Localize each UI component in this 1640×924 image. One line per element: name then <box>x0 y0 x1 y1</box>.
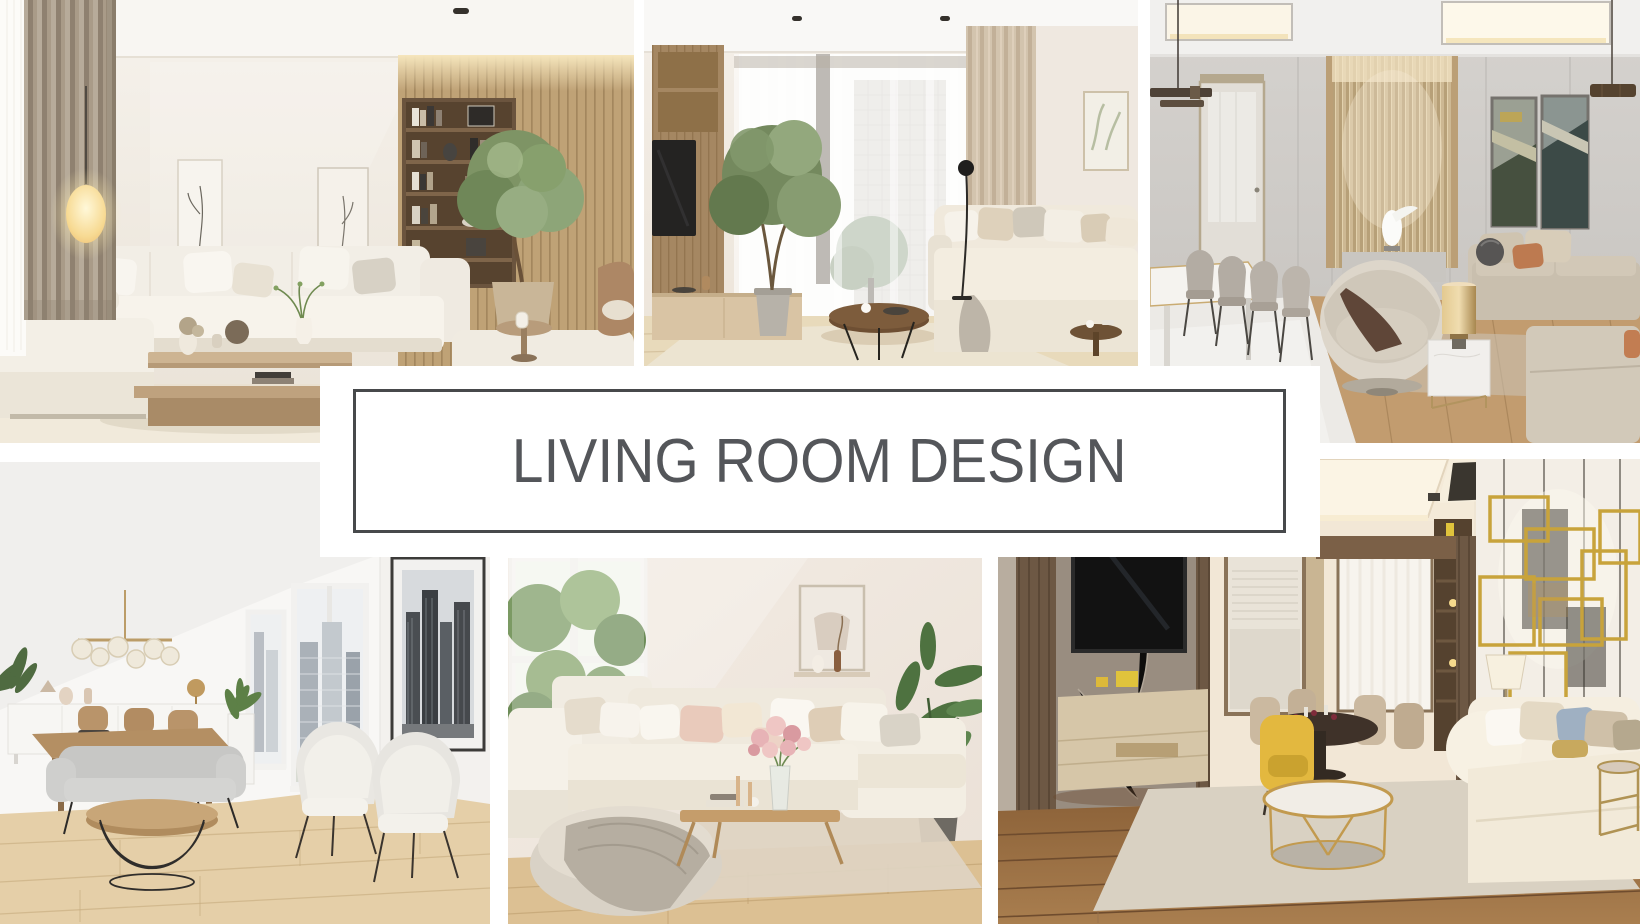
photo-bottom-middle-scene <box>508 558 982 924</box>
living-room-collage: LIVING ROOM DESIGN <box>0 0 1640 924</box>
fluted-feature-wall <box>1326 56 1458 282</box>
title-frame: LIVING ROOM DESIGN <box>353 389 1286 533</box>
door <box>1200 74 1264 272</box>
photo-top-middle-scene <box>644 0 1138 368</box>
shelf-art <box>794 586 870 677</box>
collage-title: LIVING ROOM DESIGN <box>512 426 1127 497</box>
mirror <box>1226 554 1304 714</box>
sofa-bottom-right <box>1526 326 1640 443</box>
photo-bottom-middle <box>508 558 982 924</box>
curtain-panel <box>1306 547 1324 713</box>
framed-art <box>1084 92 1128 170</box>
back-room <box>1210 519 1472 801</box>
title-banner: LIVING ROOM DESIGN <box>320 366 1320 557</box>
photo-top-middle <box>644 0 1138 368</box>
framed-city-art <box>392 558 484 750</box>
sheer-window <box>1338 549 1432 711</box>
cream-sofa <box>1446 697 1640 883</box>
ceiling <box>1150 0 1640 57</box>
